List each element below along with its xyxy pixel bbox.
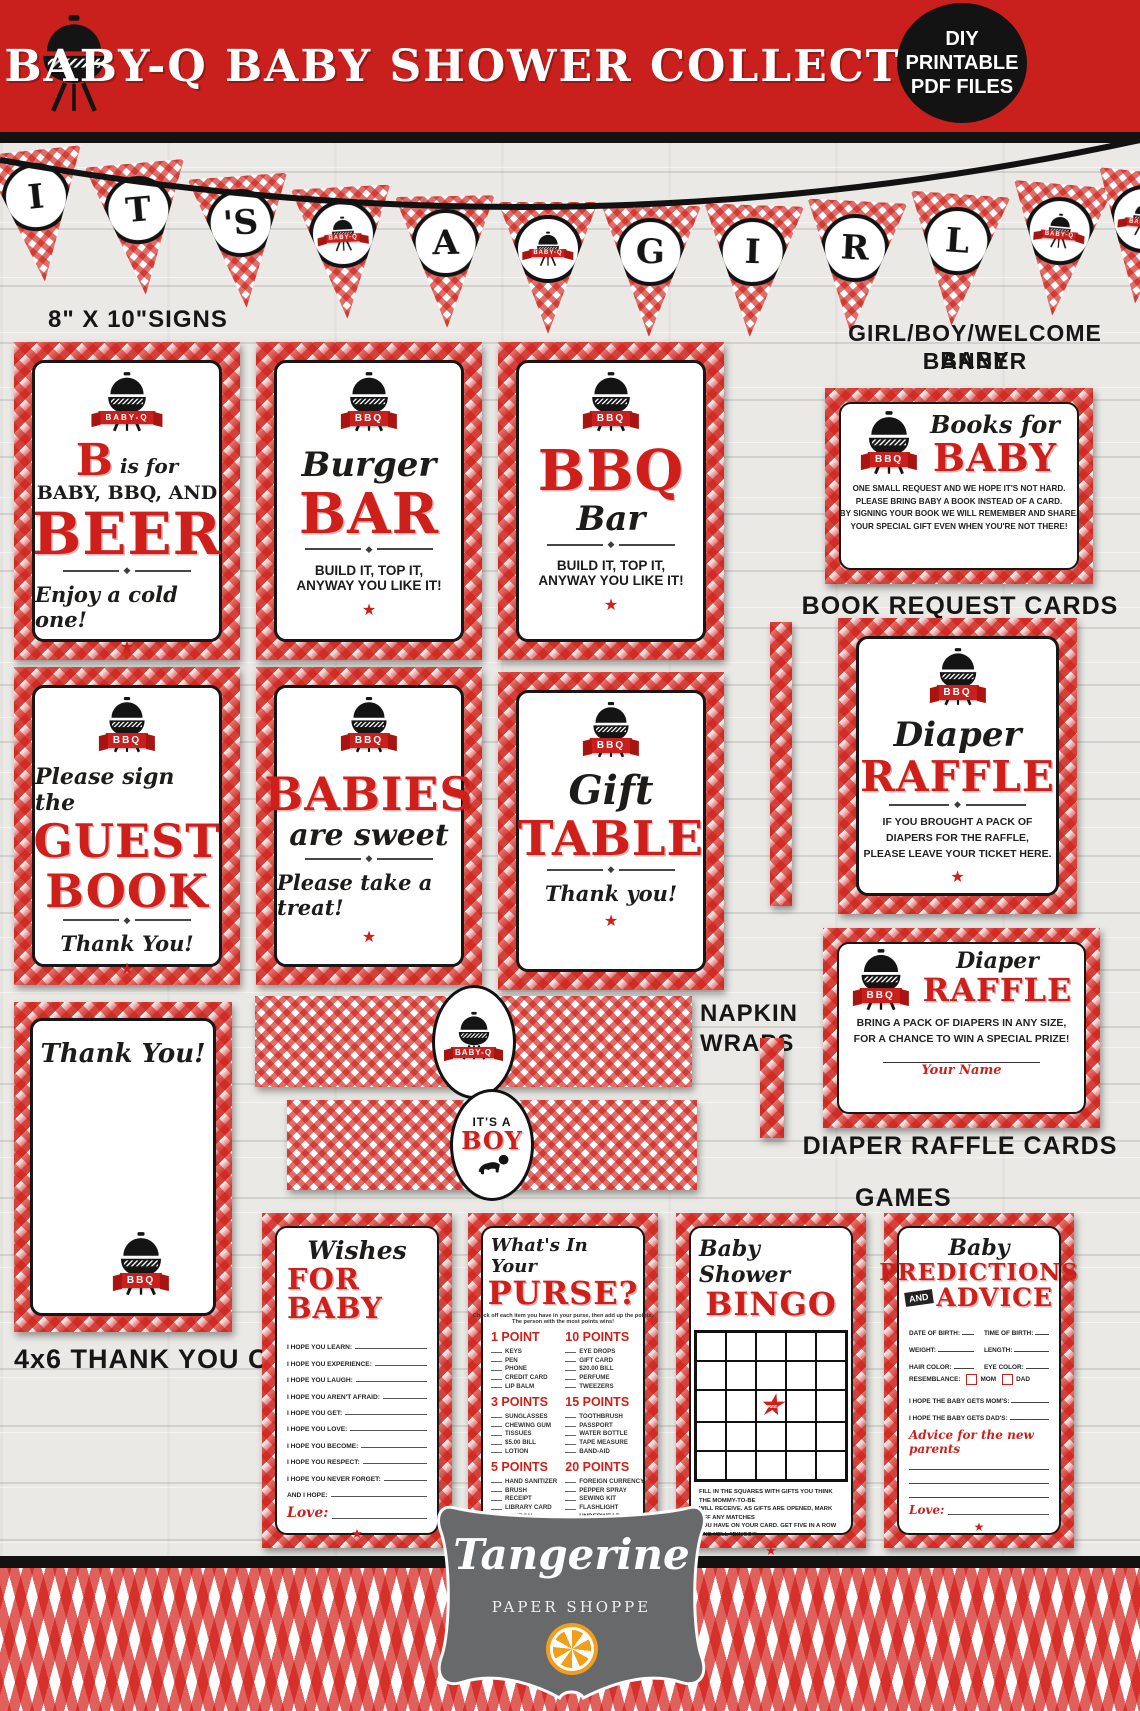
- list-item: PEN: [491, 1355, 557, 1364]
- sign-guest-panel: BBQ Please sign the GUEST BOOK ◆ Thank Y…: [32, 685, 222, 967]
- pred-row: I HOPE THE BABY GETS MOM'S:: [909, 1388, 1049, 1405]
- list-item: LOTION: [491, 1446, 557, 1455]
- list-item: I HOPE YOU EXPERIENCE:: [287, 1351, 427, 1367]
- field-label: LENGTH:: [984, 1347, 1012, 1354]
- list-item: FOR A CHANCE TO WIN A SPECIAL PRIZE!: [854, 1032, 1070, 1048]
- poster-title: BABY-Q BABY SHOWER COLLECTION: [125, 26, 885, 106]
- list-item: KEYS: [491, 1346, 557, 1355]
- sign-bbq-bar: BBQ BBQ Bar ◆ BUILD IT, TOP IT, ANYWAY Y…: [498, 342, 724, 660]
- thank-you-script: Thank You!: [40, 1039, 205, 1069]
- purse-column-right: 10 POINTS EYE DROPSGIFT CARD$20.00 BILLP…: [565, 1325, 644, 1520]
- mom-checkbox: [966, 1374, 977, 1385]
- game-wishes-for-baby: Wishes FOR BABY I HOPE YOU LEARN:I HOPE …: [262, 1213, 452, 1548]
- list-item: I HOPE YOU RESPECT:: [287, 1450, 427, 1466]
- star-icon: ★: [604, 914, 618, 930]
- points-heading: 15 POINTS: [565, 1395, 644, 1409]
- list-item: TWEEZERS: [565, 1381, 644, 1390]
- bingo-cell: [786, 1451, 816, 1480]
- bingo-cell: [816, 1422, 846, 1451]
- thank-you-tagline: Thank You!: [60, 931, 193, 956]
- field: EYE COLOR:: [984, 1364, 1049, 1371]
- field-label: I HOPE THE BABY GETS DAD'S:: [909, 1415, 1008, 1422]
- love-label: Love:: [909, 1503, 944, 1517]
- bingo-script: Baby Shower: [699, 1236, 843, 1288]
- list-item: I HOPE YOU NEVER FORGET:: [287, 1466, 427, 1482]
- build-it-line1: BUILD IT, TOP IT,: [557, 558, 665, 573]
- bingo-cell: [726, 1361, 756, 1390]
- grill-logo: BBQ: [584, 701, 638, 759]
- beer-tagline: Enjoy a cold one!: [35, 582, 219, 632]
- grill-logo: BBQ: [110, 1231, 172, 1297]
- bbq-ribbon: BBQ: [936, 685, 978, 700]
- purse-title: PURSE?: [488, 1277, 639, 1309]
- divider-ornament: ◆: [305, 544, 434, 555]
- napkin-wrap-baby-q: BABY-Q: [255, 996, 692, 1087]
- baby-q-ribbon: BABY-Q: [451, 1047, 496, 1058]
- grill-logo: BBQ: [930, 647, 986, 707]
- diaper-raffle-sign: BBQ Diaper RAFFLE ◆ IF YOU BROUGHT A PAC…: [838, 618, 1077, 914]
- bbq-ribbon: BBQ: [590, 411, 632, 426]
- bingo-cell: [726, 1451, 756, 1480]
- is-for-text: is for: [120, 454, 178, 478]
- gift-script: Gift: [568, 767, 653, 814]
- bingo-cell: [696, 1390, 726, 1422]
- list-item: I HOPE YOU LEARN:: [287, 1335, 427, 1351]
- diaper-card-title-block: Diaper RAFFLE: [923, 948, 1073, 1006]
- divider-ornament: ◆: [305, 853, 434, 864]
- sign-beer-panel: BABY-Q B is for BABY, BBQ, AND BEER ◆ En…: [32, 360, 222, 642]
- and-badge: AND: [904, 1289, 933, 1307]
- thank-you-card: Thank You! BBQ: [14, 1002, 232, 1332]
- bar-script: Bar: [577, 499, 646, 539]
- grill-logo: BBQ: [340, 371, 398, 433]
- list-item: DIAPERS FOR THE RAFFLE,: [886, 831, 1029, 847]
- advice-line: [909, 1456, 1049, 1470]
- game-baby-predictions-advice: Baby PREDICTIONS AND ADVICE DATE OF BIRT…: [884, 1213, 1074, 1548]
- books-header-row: BBQ Books for BABY: [841, 410, 1077, 477]
- b-is-for-row: B is for: [76, 443, 179, 478]
- bingo-grid: ★FREE: [694, 1330, 848, 1482]
- field: WEIGHT:: [909, 1347, 974, 1354]
- star-icon: ★: [362, 930, 376, 946]
- diy-badge-line: DIY: [945, 27, 978, 51]
- your-name-label: Your Name: [922, 1063, 1002, 1078]
- field: DATE OF BIRTH:: [909, 1330, 974, 1337]
- are-sweet-text: are sweet: [289, 818, 449, 853]
- sign-burger-bar: BBQ Burger BAR ◆ BUILD IT, TOP IT, ANYWA…: [256, 342, 482, 660]
- divider-ornament: ◆: [547, 539, 676, 550]
- list-item: I HOPE YOU LAUGH:: [287, 1368, 427, 1384]
- list-item: YOUR SPECIAL GIFT EVEN WHEN YOU'RE NOT T…: [850, 521, 1067, 534]
- baby-q-ribbon: BABY-Q: [98, 411, 155, 424]
- list-item: $5.00 BILL: [491, 1437, 557, 1446]
- diaper-sign-text: IF YOU BROUGHT A PACK OFDIAPERS FOR THE …: [863, 815, 1051, 862]
- bingo-cell: [786, 1390, 816, 1422]
- mom-label: MOM: [980, 1376, 996, 1383]
- wishes-panel: Wishes FOR BABY I HOPE YOU LEARN:I HOPE …: [275, 1226, 439, 1535]
- bingo-cell: [756, 1361, 786, 1390]
- signs-section-label: 8" X 10"SIGNS: [48, 306, 228, 334]
- list-item: HAND SANITIZER: [491, 1476, 557, 1485]
- bingo-cell: [786, 1332, 816, 1361]
- sign-babies-panel: BBQ BABIES are sweet ◆ Please take a tre…: [274, 685, 464, 967]
- list-item: I HOPE YOU AREN'T AFRAID:: [287, 1384, 427, 1400]
- books-for-baby-card: BBQ Books for BABY ONE SMALL REQUEST AND…: [825, 388, 1093, 584]
- list-item: LIP BALM: [491, 1381, 557, 1390]
- book-title: BOOK: [45, 867, 209, 915]
- bingo-cell: [816, 1390, 846, 1422]
- list-item: BRING A PACK OF DIAPERS IN ANY SIZE,: [857, 1016, 1067, 1032]
- love-label: Love:: [287, 1505, 328, 1521]
- predictions-title: PREDICTIONS: [879, 1261, 1079, 1285]
- list-item: CREDIT CARD: [491, 1372, 557, 1381]
- table-title: TABLE: [518, 814, 704, 864]
- baby-q-collection-poster: BABY-Q BABY SHOWER COLLECTION DIY PRINTA…: [0, 0, 1140, 1711]
- list-item: TISSUES: [491, 1429, 557, 1438]
- guest-title: GUEST: [34, 816, 221, 867]
- tangerine-paper-shoppe-logo: Tangerine PAPER SHOPPE: [433, 1492, 710, 1708]
- list-item: CHEWING GUM: [491, 1420, 557, 1429]
- sign-guest-book: BBQ Please sign the GUEST BOOK ◆ Thank Y…: [14, 667, 240, 985]
- napkin-oval-badge: IT'S A BOY: [450, 1089, 534, 1201]
- list-item: I HOPE YOU GET:: [287, 1401, 427, 1417]
- bbq-ribbon: BBQ: [348, 733, 390, 748]
- sign-bbq-panel: BBQ BBQ Bar ◆ BUILD IT, TOP IT, ANYWAY Y…: [516, 360, 706, 642]
- bingo-cell: [756, 1332, 786, 1361]
- points-items: EYE DROPSGIFT CARD$20.00 BILLPERFUMETWEE…: [565, 1346, 644, 1390]
- diy-badge-line: PDF FILES: [911, 75, 1013, 99]
- bingo-cell: [726, 1390, 756, 1422]
- cutoff-printable-edge: [770, 622, 792, 906]
- list-item: BY SIGNING YOUR BOOK WE WILL REMEMBER AN…: [840, 508, 1078, 521]
- grill-logo: BBQ: [851, 948, 911, 1012]
- purse-column-left: 1 POINT KEYSPENPHONECREDIT CARDLIP BALM …: [491, 1325, 557, 1520]
- field-label: WEIGHT:: [909, 1347, 936, 1354]
- star-icon: ★: [974, 1521, 985, 1533]
- grill-logo: BBQ: [582, 371, 640, 433]
- resemblance-label: RESEMBLANCE:: [909, 1376, 960, 1383]
- field-label: I HOPE THE BABY GETS MOM'S:: [909, 1398, 1009, 1405]
- diy-badge-line: PRINTABLE: [906, 51, 1019, 75]
- grill-logo: BABY-Q: [98, 371, 156, 433]
- logo-subtitle: PAPER SHOPPE: [433, 1598, 710, 1616]
- bingo-cell: [816, 1451, 846, 1480]
- napkin-wraps-label-line1: NAPKIN: [700, 1000, 798, 1028]
- raffle-title: RAFFLE: [923, 974, 1073, 1006]
- raffle-title: RAFFLE: [860, 755, 1055, 799]
- list-item: WATER BOTTLE: [565, 1429, 644, 1438]
- star-icon: ★: [950, 870, 964, 886]
- purse-panel: What's In Your PURSE? Check off each ite…: [481, 1226, 645, 1535]
- list-item: I HOPE YOU LOVE:: [287, 1417, 427, 1433]
- bbq-ribbon: BBQ: [120, 1273, 162, 1288]
- book-request-label: BOOK REQUEST CARDS: [790, 592, 1130, 621]
- diaper-card-panel: BBQ Diaper RAFFLE BRING A PACK OF DIAPER…: [837, 942, 1086, 1114]
- wishes-lines: I HOPE YOU LEARN:I HOPE YOU EXPERIENCE:I…: [287, 1335, 427, 1499]
- divider-ornament: ◆: [63, 565, 192, 576]
- field-label: HAIR COLOR:: [909, 1364, 952, 1371]
- grill-logo: BBQ: [342, 696, 396, 754]
- field: HAIR COLOR:: [909, 1364, 974, 1371]
- bingo-cell: [786, 1361, 816, 1390]
- points-items: TOOTHBRUSHPASSPORTWATER BOTTLETAPE MEASU…: [565, 1411, 644, 1455]
- advice-title: ADVICE: [936, 1285, 1053, 1310]
- bbq-ribbon: BBQ: [590, 738, 632, 753]
- build-it-line2: ANYWAY YOU LIKE IT!: [296, 578, 441, 593]
- divider-ornament: ◆: [547, 864, 676, 875]
- diaper-raffle-cards-label: DIAPER RAFFLE CARDS: [790, 1132, 1130, 1161]
- baby-title: BABY: [933, 439, 1057, 477]
- banner-section-label-line2: BANNER: [810, 348, 1140, 375]
- bbq-ribbon: BBQ: [860, 988, 902, 1003]
- list-item: WILL RECEIVE. AS GIFTS ARE OPENED, MARK …: [699, 1505, 843, 1522]
- star-icon: ★: [351, 1527, 363, 1540]
- field: I HOPE THE BABY GETS MOM'S:: [909, 1398, 1049, 1405]
- build-it-line1: BUILD IT, TOP IT,: [315, 563, 423, 578]
- logo-name: Tangerine: [433, 1530, 710, 1579]
- for-baby-title: FOR BABY: [287, 1265, 427, 1323]
- sign-burger-panel: BBQ Burger BAR ◆ BUILD IT, TOP IT, ANYWA…: [274, 360, 464, 642]
- diaper-card-header: BBQ Diaper RAFFLE: [839, 948, 1084, 1012]
- field: LENGTH:: [984, 1347, 1049, 1354]
- take-a-treat-text: Please take a treat!: [277, 870, 461, 920]
- bbq-title: BBQ: [538, 443, 684, 499]
- list-item: BAND-AID: [565, 1446, 644, 1455]
- bingo-cell: [786, 1422, 816, 1451]
- please-sign-text: Please sign the: [35, 764, 219, 816]
- star-icon: ★: [120, 640, 134, 656]
- advice-line: [909, 1484, 1049, 1498]
- list-item: TAPE MEASURE: [565, 1437, 644, 1446]
- free-label: FREE: [765, 1404, 777, 1409]
- list-item: TOOTHBRUSH: [565, 1411, 644, 1420]
- sign-beer: BABY-Q B is for BABY, BBQ, AND BEER ◆ En…: [14, 342, 240, 660]
- divider-ornament: ◆: [63, 915, 192, 926]
- pred-row: HAIR COLOR: EYE COLOR:: [909, 1354, 1049, 1371]
- bingo-cell: [756, 1451, 786, 1480]
- list-item: AND I HOPE:: [287, 1483, 427, 1499]
- advice-line: [909, 1470, 1049, 1484]
- bingo-cell: [726, 1422, 756, 1451]
- bbq-ribbon: BBQ: [106, 733, 148, 748]
- resemblance-row: RESEMBLANCE: MOM DAD: [909, 1371, 1049, 1388]
- pred-row: DATE OF BIRTH: TIME OF BIRTH:: [909, 1320, 1049, 1337]
- points-heading: 20 POINTS: [565, 1460, 644, 1474]
- bingo-cell: [816, 1332, 846, 1361]
- babies-title: BABIES: [264, 770, 473, 818]
- star-icon: ★: [120, 962, 134, 978]
- books-title-block: Books for BABY: [930, 410, 1060, 477]
- field-label: TIME OF BIRTH:: [984, 1330, 1033, 1337]
- star-icon: ★: [362, 603, 376, 619]
- list-item: PHONE: [491, 1364, 557, 1373]
- points-items: KEYSPENPHONECREDIT CARDLIP BALM: [491, 1346, 557, 1390]
- list-item: PLEASE BRING BABY A BOOK INSTEAD OF A CA…: [856, 496, 1062, 509]
- points-heading: 1 POINT: [491, 1330, 557, 1344]
- love-row: Love:: [909, 1503, 1049, 1517]
- thank-you-panel: Thank You! BBQ: [30, 1018, 216, 1316]
- burger-script: Burger: [302, 445, 437, 485]
- purse-script: What's In Your: [491, 1235, 635, 1277]
- bingo-free-cell: ★FREE: [756, 1390, 786, 1422]
- napkin-wrap-its-a-boy: IT'S A BOY: [287, 1100, 697, 1190]
- list-item: IF YOU BROUGHT A PACK OF: [883, 815, 1033, 831]
- cutoff-printable-edge: [760, 1038, 784, 1138]
- napkin-oval-badge: BABY-Q: [432, 985, 516, 1099]
- wishes-script: Wishes: [307, 1236, 406, 1265]
- sign-gift-panel: BBQ Gift TABLE ◆ Thank you! ★: [516, 690, 706, 972]
- purse-columns: 1 POINT KEYSPENPHONECREDIT CARDLIP BALM …: [491, 1325, 635, 1520]
- list-item: FOREIGN CURRENCY: [565, 1476, 644, 1485]
- field: I HOPE THE BABY GETS DAD'S:: [909, 1415, 1049, 1422]
- advice-heading: Advice for the new parents: [909, 1428, 1049, 1456]
- bbq-ribbon: BBQ: [868, 452, 910, 467]
- build-it-line2: ANYWAY YOU LIKE IT!: [538, 573, 683, 588]
- baby-script: Baby: [948, 1235, 1009, 1261]
- bingo-cell: [816, 1361, 846, 1390]
- bingo-cell: [696, 1451, 726, 1480]
- bingo-panel: Baby Shower BINGO ★FREE FILL IN THE SQUA…: [689, 1226, 853, 1535]
- dad-label: DAD: [1016, 1376, 1030, 1383]
- beer-title: BEER: [32, 504, 222, 565]
- letter-b: B: [76, 443, 114, 478]
- diaper-card-text: BRING A PACK OF DIAPERS IN ANY SIZE,FOR …: [854, 1016, 1070, 1048]
- list-item: GIFT CARD: [565, 1355, 644, 1364]
- orange-slice-icon: [553, 1630, 591, 1668]
- bingo-cell: [696, 1361, 726, 1390]
- bingo-cell: [696, 1332, 726, 1361]
- list-item: SUNGLASSES: [491, 1411, 557, 1420]
- list-item: YOU HAVE ON YOUR CARD. GET FIVE IN A ROW…: [699, 1522, 843, 1539]
- bingo-instructions: FILL IN THE SQUARES WITH GIFTS YOU THINK…: [699, 1488, 843, 1539]
- list-item: $20.00 BILL: [565, 1364, 644, 1373]
- list-item: EYE DROPS: [565, 1346, 644, 1355]
- sign-babies-sweet: BBQ BABIES are sweet ◆ Please take a tre…: [256, 667, 482, 985]
- predictions-panel: Baby PREDICTIONS AND ADVICE DATE OF BIRT…: [897, 1226, 1061, 1535]
- list-item: PASSPORT: [565, 1420, 644, 1429]
- list-item: ONE SMALL REQUEST AND WE HOPE IT'S NOT H…: [853, 483, 1066, 496]
- diaper-sign-panel: BBQ Diaper RAFFLE ◆ IF YOU BROUGHT A PAC…: [856, 636, 1059, 896]
- love-row: Love:: [287, 1505, 427, 1521]
- grill-logo: BBQ: [100, 696, 154, 754]
- divider-ornament: ◆: [889, 799, 1027, 810]
- and-advice-row: AND ADVICE: [905, 1285, 1053, 1310]
- crawling-baby-icon: [472, 1153, 512, 1175]
- thank-you-tagline: Thank you!: [545, 881, 677, 906]
- pred-row: I HOPE THE BABY GETS DAD'S:: [909, 1405, 1049, 1422]
- list-item: PERFUME: [565, 1372, 644, 1381]
- points-heading: 3 POINTS: [491, 1395, 557, 1409]
- diaper-raffle-card: BBQ Diaper RAFFLE BRING A PACK OF DIAPER…: [823, 928, 1100, 1128]
- list-item: PLEASE LEAVE YOUR TICKET HERE.: [863, 847, 1051, 863]
- diy-badge: DIY PRINTABLE PDF FILES: [897, 3, 1027, 123]
- points-items: SUNGLASSESCHEWING GUMTISSUES$5.00 BILLLO…: [491, 1411, 557, 1455]
- bingo-cell: [756, 1422, 786, 1451]
- games-label: GAMES: [855, 1184, 952, 1213]
- bbq-ribbon: BBQ: [348, 411, 390, 426]
- books-request-text: ONE SMALL REQUEST AND WE HOPE IT'S NOT H…: [840, 483, 1078, 533]
- sign-gift-table: BBQ Gift TABLE ◆ Thank you! ★: [498, 672, 724, 990]
- points-heading: 5 POINTS: [491, 1460, 557, 1474]
- list-item: I HOPE YOU BECOME:: [287, 1433, 427, 1449]
- grill-logo: BBQ: [858, 410, 920, 476]
- field-label: DATE OF BIRTH:: [909, 1330, 960, 1337]
- books-panel: BBQ Books for BABY ONE SMALL REQUEST AND…: [839, 402, 1079, 570]
- bingo-cell: [726, 1332, 756, 1361]
- dad-checkbox: [1002, 1374, 1013, 1385]
- points-heading: 10 POINTS: [565, 1330, 644, 1344]
- predictions-fields: DATE OF BIRTH: TIME OF BIRTH: WEIGHT: LE…: [909, 1320, 1049, 1422]
- diaper-script: Diaper: [894, 715, 1022, 755]
- bingo-title: BINGO: [705, 1288, 836, 1320]
- boy-title: BOY: [461, 1129, 523, 1153]
- field-label: EYE COLOR:: [984, 1364, 1024, 1371]
- field: TIME OF BIRTH:: [984, 1330, 1049, 1337]
- list-item: FILL IN THE SQUARES WITH GIFTS YOU THINK…: [699, 1488, 843, 1505]
- star-icon: ★: [604, 598, 618, 614]
- pred-row: WEIGHT: LENGTH:: [909, 1337, 1049, 1354]
- pennant-string: [0, 138, 1140, 258]
- bingo-cell: [696, 1422, 726, 1451]
- bar-title: BAR: [299, 485, 439, 544]
